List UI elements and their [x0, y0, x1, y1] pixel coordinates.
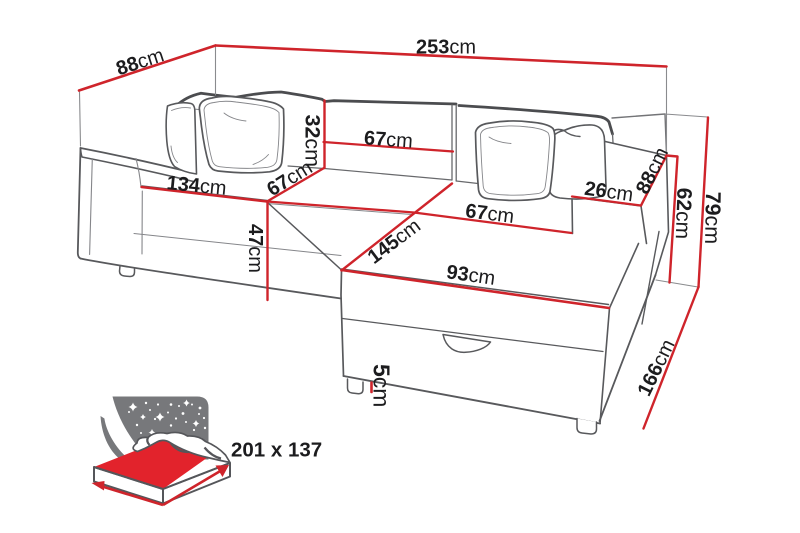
svg-text:5cm: 5cm — [369, 364, 395, 407]
svg-text:47cm: 47cm — [244, 224, 266, 273]
svg-text:67cm: 67cm — [363, 127, 413, 152]
svg-text:79cm: 79cm — [700, 191, 725, 244]
svg-text:62cm: 62cm — [671, 187, 696, 239]
svg-text:201 x 137: 201 x 137 — [231, 439, 322, 462]
svg-text:253cm: 253cm — [416, 37, 476, 59]
